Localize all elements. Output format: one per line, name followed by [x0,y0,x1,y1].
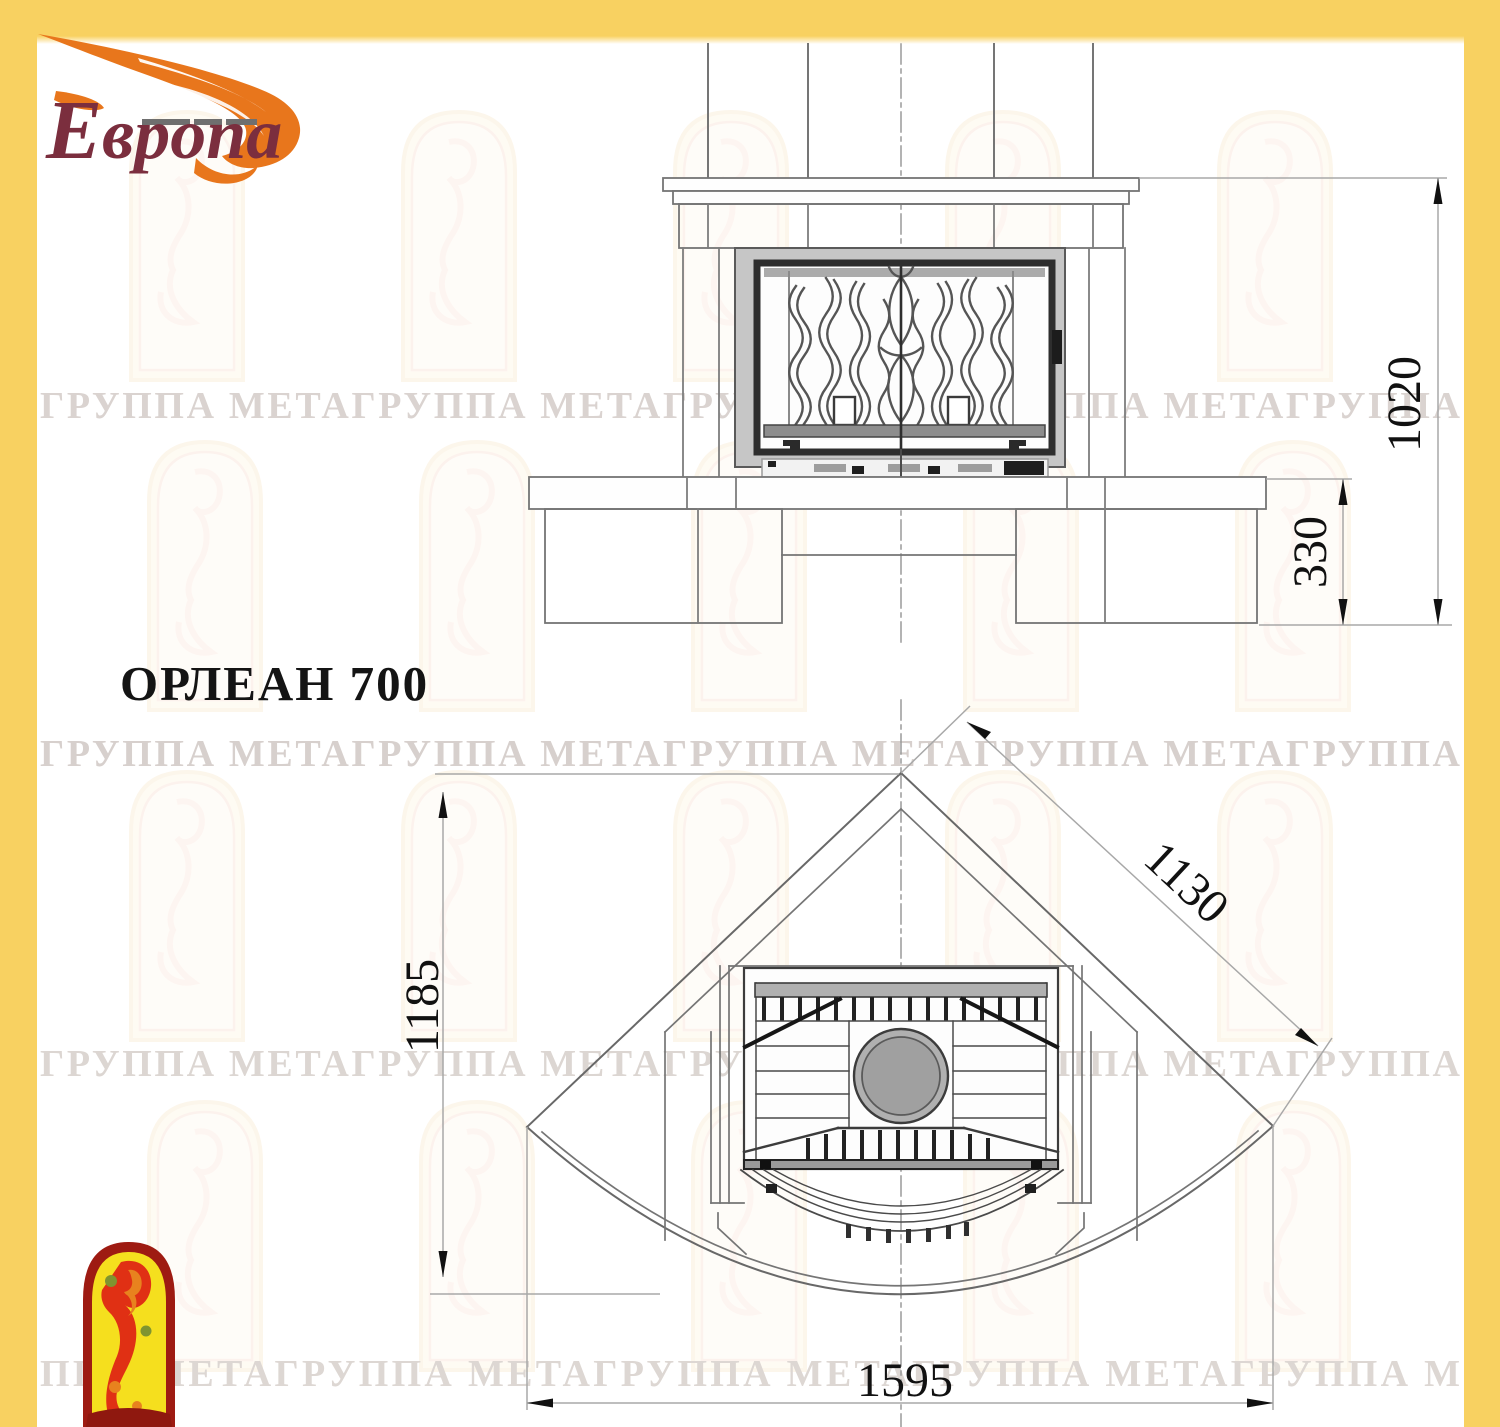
svg-text:1020: 1020 [1378,356,1431,452]
svg-text:ГРУППА МЕТАГРУППА МЕТАГРУППА М: ГРУППА МЕТАГРУППА МЕТАГРУППА МЕТАГРУППА … [40,733,1461,775]
svg-text:Европа: Европа [45,84,282,177]
svg-text:ППА МЕТАГРУППА МЕТАГРУППА МЕТА: ППА МЕТАГРУППА МЕТАГРУППА МЕТАГРУППА МЕТ… [40,1353,1460,1395]
svg-text:ОРЛЕАН 700: ОРЛЕАН 700 [120,656,429,711]
svg-text:330: 330 [1284,516,1337,588]
svg-text:1595: 1595 [857,1354,953,1407]
svg-text:1185: 1185 [396,959,449,1053]
